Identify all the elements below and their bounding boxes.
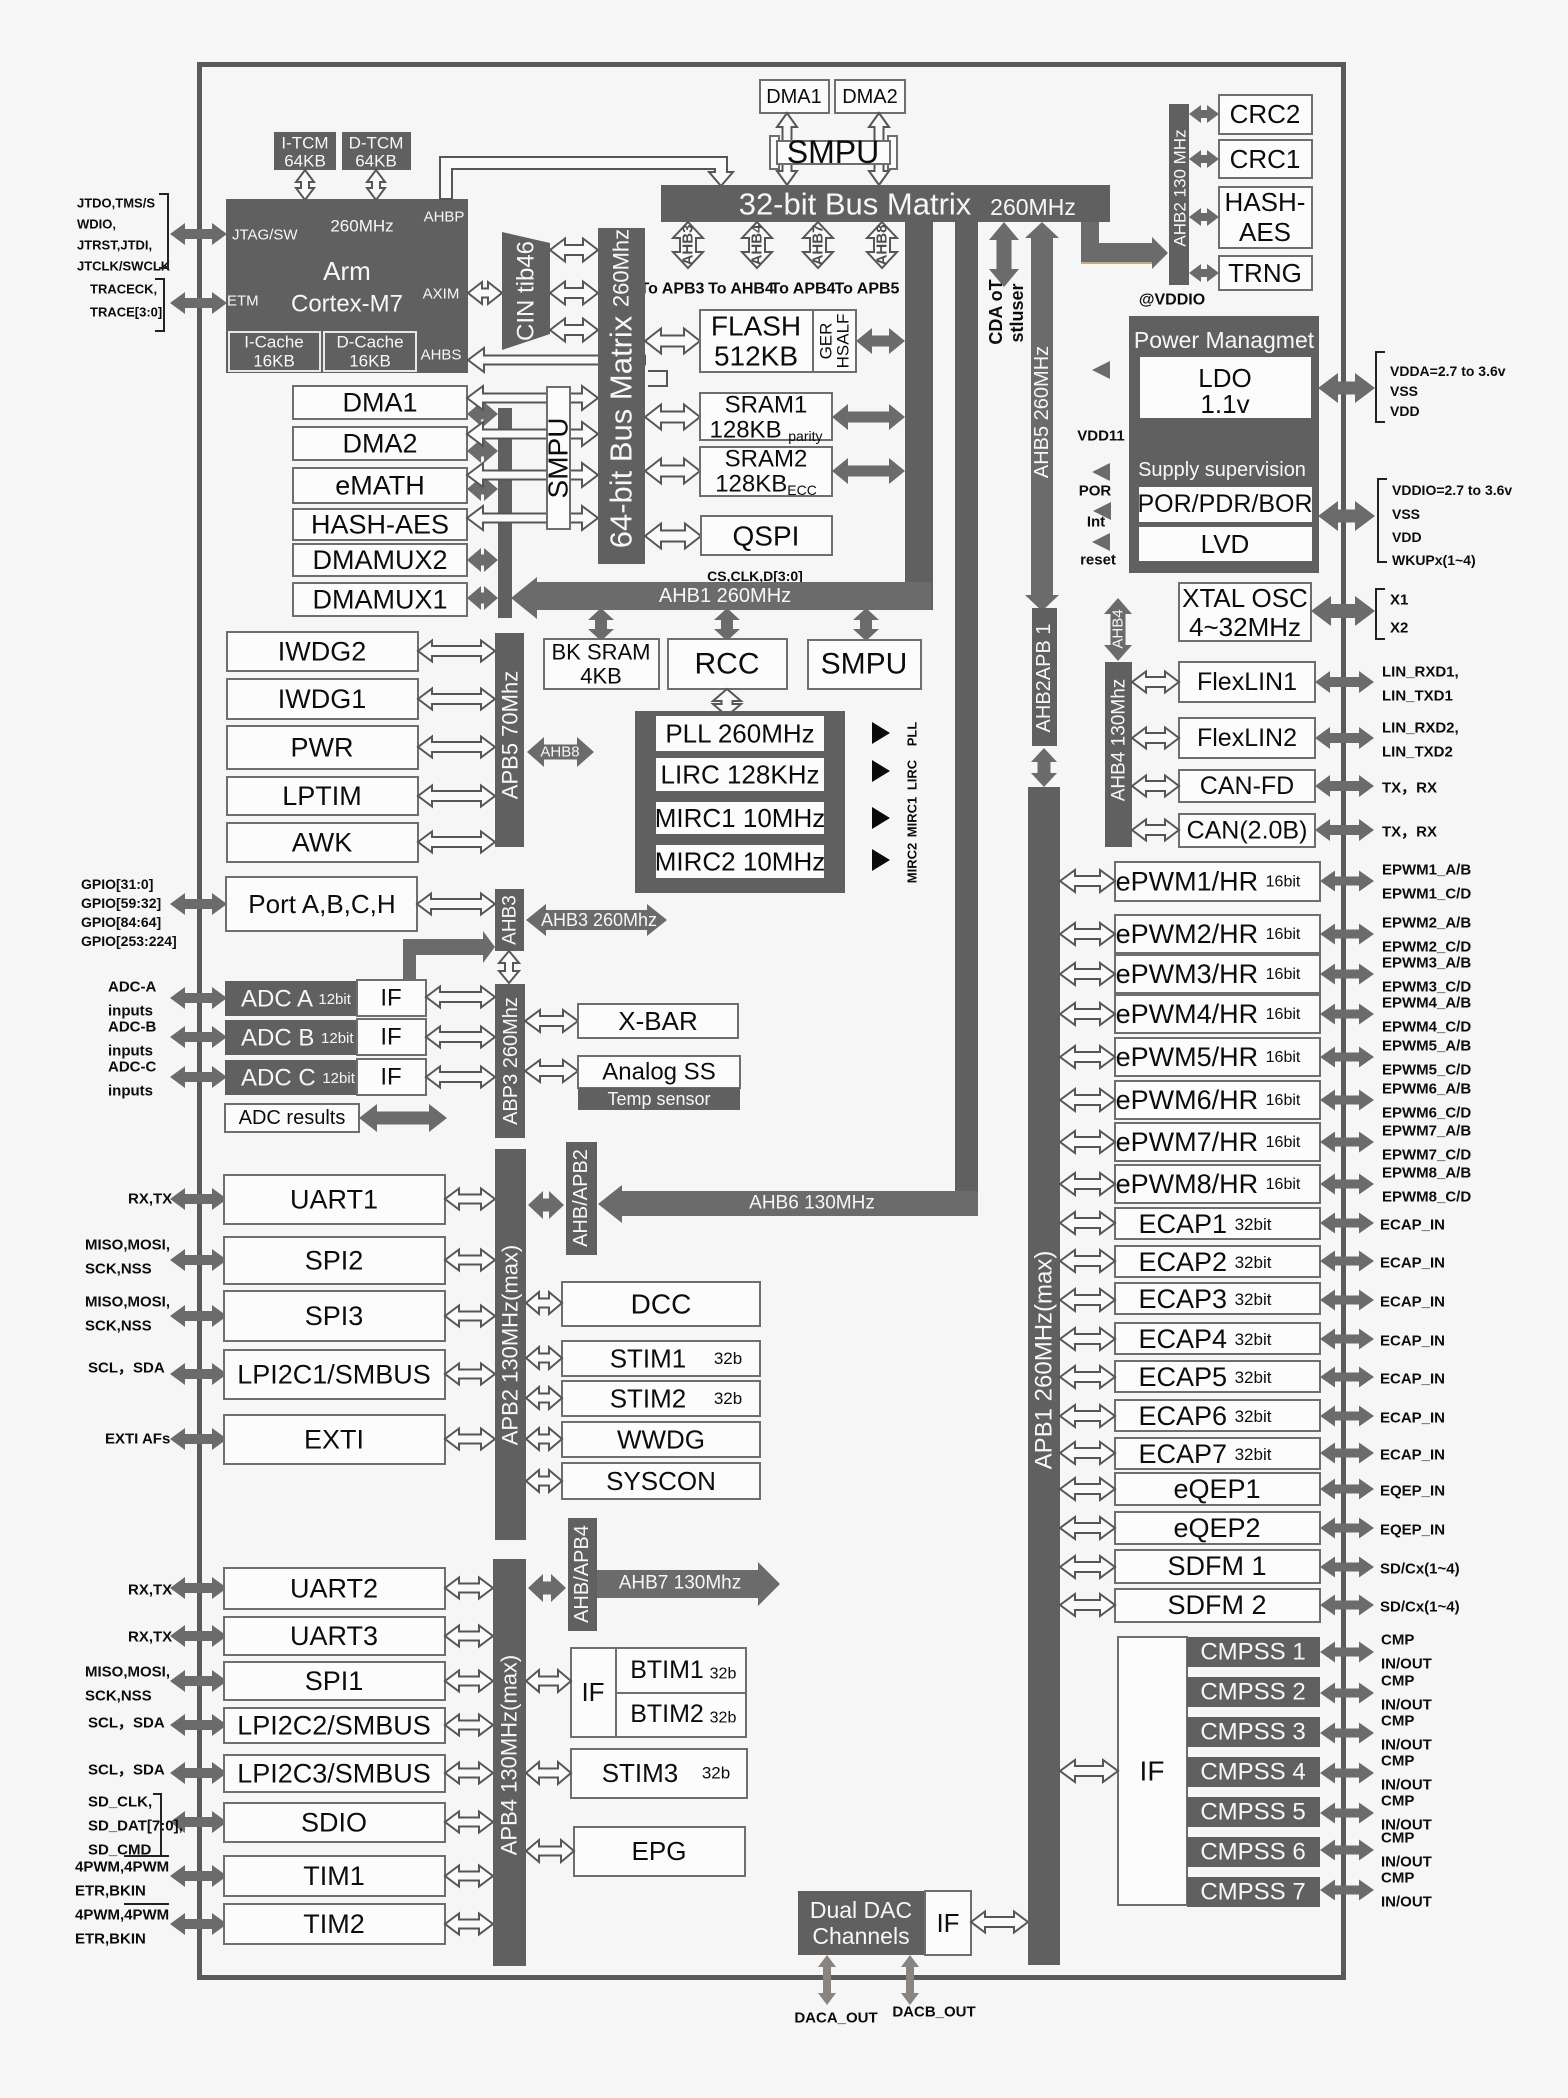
svg-text:TX，RX: TX，RX xyxy=(1382,780,1437,797)
svg-text:CRC1: CRC1 xyxy=(1230,144,1301,174)
svg-text:16KB: 16KB xyxy=(349,352,391,371)
svg-text:CIN tib46: CIN tib46 xyxy=(513,241,540,341)
svg-text:EPWM7_A/B: EPWM7_A/B xyxy=(1382,1123,1471,1140)
svg-text:CMPSS 5: CMPSS 5 xyxy=(1200,1799,1305,1826)
svg-text:LIRC: LIRC xyxy=(905,759,920,790)
svg-text:ECAP_IN: ECAP_IN xyxy=(1380,1447,1445,1464)
svg-text:RX,TX: RX,TX xyxy=(128,1629,172,1646)
svg-text:4~32MHz: 4~32MHz xyxy=(1189,612,1301,642)
svg-text:AHBS: AHBS xyxy=(421,347,462,364)
svg-text:IF: IF xyxy=(380,1024,401,1051)
svg-text:WWDG: WWDG xyxy=(617,1425,705,1455)
svg-text:AES: AES xyxy=(1239,217,1291,247)
svg-text:VDD: VDD xyxy=(1392,529,1422,545)
svg-text:SDFM 1: SDFM 1 xyxy=(1167,1551,1266,1581)
svg-text:BTIM2: BTIM2 xyxy=(630,1700,704,1728)
svg-text:LIRC 128KHz: LIRC 128KHz xyxy=(661,760,820,790)
svg-text:IF: IF xyxy=(380,985,401,1012)
svg-text:64KB: 64KB xyxy=(355,152,397,171)
svg-text:UART3: UART3 xyxy=(290,1621,378,1651)
svg-text:BTIM1: BTIM1 xyxy=(630,1656,704,1684)
svg-text:ECAP_IN: ECAP_IN xyxy=(1380,1333,1445,1350)
svg-text:AHB2 130 MHz: AHB2 130 MHz xyxy=(1171,129,1190,246)
svg-text:32b: 32b xyxy=(710,1666,737,1683)
svg-text:AWK: AWK xyxy=(292,828,353,858)
svg-text:HSALF: HSALF xyxy=(834,314,853,369)
svg-text:APB1 260MHz(max): APB1 260MHz(max) xyxy=(1031,1251,1058,1470)
svg-text:EPWM2_C/D: EPWM2_C/D xyxy=(1382,939,1471,956)
svg-text:GPIO[84:64]: GPIO[84:64] xyxy=(81,914,161,930)
svg-text:X-BAR: X-BAR xyxy=(618,1006,697,1036)
svg-text:LIN_RXD2,: LIN_RXD2, xyxy=(1382,720,1459,737)
svg-text:SCL，SDA: SCL，SDA xyxy=(88,1360,165,1377)
svg-text:MIRC1 10MHz: MIRC1 10MHz xyxy=(655,803,825,833)
svg-text:ECAP_IN: ECAP_IN xyxy=(1380,1294,1445,1311)
svg-text:I-Cache: I-Cache xyxy=(244,333,304,352)
svg-text:PWR: PWR xyxy=(291,733,354,763)
svg-text:260MHz: 260MHz xyxy=(330,217,393,236)
svg-text:4PWM,4PWM: 4PWM,4PWM xyxy=(75,1907,169,1924)
svg-text:MIRC2: MIRC2 xyxy=(905,843,920,883)
svg-text:EPWM3_C/D: EPWM3_C/D xyxy=(1382,979,1471,996)
svg-text:64KB: 64KB xyxy=(284,152,326,171)
svg-text:I-TCM: I-TCM xyxy=(281,134,328,153)
svg-text:SCK,NSS: SCK,NSS xyxy=(85,1318,152,1335)
svg-text:FlexLIN1: FlexLIN1 xyxy=(1197,668,1297,696)
svg-text:CMPSS 1: CMPSS 1 xyxy=(1200,1639,1305,1666)
svg-text:CMPSS 2: CMPSS 2 xyxy=(1200,1679,1305,1706)
svg-text:IN/OUT: IN/OUT xyxy=(1381,1777,1432,1794)
svg-text:SMPU: SMPU xyxy=(821,648,908,681)
svg-text:GPIO[253:224]: GPIO[253:224] xyxy=(81,933,177,949)
svg-text:LIN_TXD2: LIN_TXD2 xyxy=(1382,744,1453,761)
svg-text:32-bit Bus Matrix: 32-bit Bus Matrix xyxy=(739,187,972,222)
svg-text:EPWM4_C/D: EPWM4_C/D xyxy=(1382,1019,1471,1036)
svg-text:eMATH: eMATH xyxy=(335,471,425,501)
svg-text:AHB4: AHB4 xyxy=(1110,609,1127,648)
svg-text:eQEP1: eQEP1 xyxy=(1173,1474,1260,1504)
svg-text:RCC: RCC xyxy=(695,648,760,681)
svg-text:IF: IF xyxy=(380,1064,401,1091)
svg-text:Power Managmet: Power Managmet xyxy=(1134,327,1315,353)
svg-text:To AHB4: To AHB4 xyxy=(708,281,774,298)
svg-text:stluser: stluser xyxy=(1007,283,1027,342)
svg-text:RX,TX: RX,TX xyxy=(128,1582,172,1599)
svg-text:EPWM5_A/B: EPWM5_A/B xyxy=(1382,1038,1471,1055)
svg-text:IF: IF xyxy=(1140,1756,1165,1787)
svg-text:POR: POR xyxy=(1079,483,1112,500)
svg-text:inputs: inputs xyxy=(108,1003,153,1020)
svg-text:CMPSS 7: CMPSS 7 xyxy=(1200,1879,1305,1906)
svg-text:GER: GER xyxy=(817,323,836,360)
svg-text:Analog SS: Analog SS xyxy=(602,1059,715,1086)
svg-text:SD/Cx(1~4): SD/Cx(1~4) xyxy=(1380,1561,1460,1578)
svg-text:AHB1 260MHz: AHB1 260MHz xyxy=(659,585,791,607)
svg-text:AHB4: AHB4 xyxy=(749,224,766,265)
svg-text:ADC-C: ADC-C xyxy=(108,1059,156,1076)
svg-text:EPWM8_A/B: EPWM8_A/B xyxy=(1382,1165,1471,1182)
svg-text:XTAL OSC: XTAL OSC xyxy=(1182,583,1308,613)
svg-text:SRAM1: SRAM1 xyxy=(725,392,808,419)
svg-text:To APB4: To APB4 xyxy=(771,281,836,298)
svg-text:AHBP: AHBP xyxy=(424,209,465,226)
svg-text:DACB_OUT: DACB_OUT xyxy=(892,2004,975,2021)
svg-text:SDIO: SDIO xyxy=(301,1808,367,1838)
svg-text:TRACE[3:0]: TRACE[3:0] xyxy=(90,305,162,320)
svg-text:Dual DAC: Dual DAC xyxy=(810,1897,912,1923)
svg-text:CS,CLK,D[3:0]: CS,CLK,D[3:0] xyxy=(707,568,803,584)
svg-text:ECAP_IN: ECAP_IN xyxy=(1380,1255,1445,1272)
svg-text:Int: Int xyxy=(1087,514,1105,531)
svg-text:JTCLK/SWCLK: JTCLK/SWCLK xyxy=(77,259,171,274)
svg-text:ECAP_IN: ECAP_IN xyxy=(1380,1410,1445,1427)
svg-text:AHB2APB 1: AHB2APB 1 xyxy=(1033,624,1055,733)
svg-text:EPG: EPG xyxy=(632,1836,687,1866)
svg-text:CMP: CMP xyxy=(1381,1713,1414,1730)
svg-text:D-TCM: D-TCM xyxy=(349,134,404,153)
svg-text:IF: IF xyxy=(581,1677,604,1707)
svg-text:CAN(2.0B): CAN(2.0B) xyxy=(1187,817,1308,845)
svg-text:AHB7: AHB7 xyxy=(810,225,827,266)
svg-text:SMPU: SMPU xyxy=(543,418,574,499)
svg-text:D-Cache: D-Cache xyxy=(336,333,403,352)
svg-text:VSS: VSS xyxy=(1390,383,1418,399)
svg-text:Supply supervision: Supply supervision xyxy=(1138,459,1306,481)
svg-text:BK SRAM: BK SRAM xyxy=(551,640,650,665)
svg-text:EPWM1_A/B: EPWM1_A/B xyxy=(1382,862,1471,879)
svg-text:Cortex-M7: Cortex-M7 xyxy=(291,291,403,318)
svg-text:ECAP_IN: ECAP_IN xyxy=(1380,1217,1445,1234)
svg-text:EPWM5_C/D: EPWM5_C/D xyxy=(1382,1062,1471,1079)
svg-text:VDD11: VDD11 xyxy=(1077,428,1125,445)
svg-text:ADC-A: ADC-A xyxy=(108,979,156,996)
svg-text:AHB4 130Mhz: AHB4 130Mhz xyxy=(1109,679,1130,802)
svg-text:AHB3: AHB3 xyxy=(680,225,697,266)
svg-text:JTDO,TMS/S: JTDO,TMS/S xyxy=(77,196,155,211)
svg-text:SD_DAT[7:0],: SD_DAT[7:0], xyxy=(88,1818,183,1835)
svg-text:ETR,BKIN: ETR,BKIN xyxy=(75,1931,146,1948)
svg-text:GPIO[31:0]: GPIO[31:0] xyxy=(81,876,153,892)
svg-text:SPI1: SPI1 xyxy=(305,1666,364,1696)
svg-text:MIRC2 10MHz: MIRC2 10MHz xyxy=(655,847,825,877)
svg-text:IF: IF xyxy=(936,1908,959,1938)
svg-text:To APB5: To APB5 xyxy=(835,281,900,298)
svg-text:X1: X1 xyxy=(1390,592,1408,609)
svg-text:TIM1: TIM1 xyxy=(303,1861,365,1891)
svg-text:LPI2C1/SMBUS: LPI2C1/SMBUS xyxy=(237,1360,431,1390)
svg-text:EPWM2_A/B: EPWM2_A/B xyxy=(1382,915,1471,932)
svg-text:DCC: DCC xyxy=(631,1289,692,1320)
svg-text:ABP3 260Mhz: ABP3 260Mhz xyxy=(500,997,522,1125)
svg-text:SD/Cx(1~4): SD/Cx(1~4) xyxy=(1380,1599,1460,1616)
svg-text:DMA2: DMA2 xyxy=(342,429,417,459)
svg-text:LPTIM: LPTIM xyxy=(282,781,362,811)
svg-text:LVD: LVD xyxy=(1201,529,1250,559)
svg-text:ETR,BKIN: ETR,BKIN xyxy=(75,1883,146,1900)
svg-text:CRC2: CRC2 xyxy=(1230,99,1301,129)
svg-text:LPI2C2/SMBUS: LPI2C2/SMBUS xyxy=(237,1711,431,1741)
svg-text:APB2 130MHz(max): APB2 130MHz(max) xyxy=(498,1245,523,1446)
svg-text:EQEP_IN: EQEP_IN xyxy=(1380,1483,1445,1500)
svg-text:Port A,B,C,H: Port A,B,C,H xyxy=(248,889,395,919)
svg-text:IN/OUT: IN/OUT xyxy=(1381,1737,1432,1754)
svg-text:260Mhz: 260Mhz xyxy=(609,229,634,307)
svg-text:POR/PDR/BOR: POR/PDR/BOR xyxy=(1137,490,1312,518)
svg-text:ADC results: ADC results xyxy=(239,1107,346,1129)
svg-text:32b: 32b xyxy=(710,1710,737,1727)
svg-text:CMPSS 6: CMPSS 6 xyxy=(1200,1839,1305,1866)
svg-text:TRACECK,: TRACECK, xyxy=(90,282,157,297)
svg-text:64-bit Bus Matrix: 64-bit Bus Matrix xyxy=(604,315,639,548)
svg-text:SMPU: SMPU xyxy=(787,134,879,170)
svg-text:eQEP2: eQEP2 xyxy=(1173,1513,1260,1543)
svg-text:WKUPx(1~4): WKUPx(1~4) xyxy=(1392,552,1476,568)
svg-text:EPWM8_C/D: EPWM8_C/D xyxy=(1382,1189,1471,1206)
svg-text:AHB/APB2: AHB/APB2 xyxy=(570,1149,592,1247)
svg-text:CMP: CMP xyxy=(1381,1632,1414,1649)
svg-text:APB5 70Mhz: APB5 70Mhz xyxy=(498,671,523,799)
svg-text:LPI2C3/SMBUS: LPI2C3/SMBUS xyxy=(237,1759,431,1789)
svg-text:EPWM7_C/D: EPWM7_C/D xyxy=(1382,1147,1471,1164)
svg-text:SRAM2: SRAM2 xyxy=(725,446,808,473)
svg-text:CMPSS 4: CMPSS 4 xyxy=(1200,1759,1305,1786)
svg-text:IWDG1: IWDG1 xyxy=(278,684,367,714)
svg-text:STIM1: STIM1 xyxy=(610,1344,687,1374)
svg-text:reset: reset xyxy=(1080,552,1116,569)
svg-text:AHB/APB4: AHB/APB4 xyxy=(571,1525,593,1623)
svg-text:APB4 130MHz(max): APB4 130MHz(max) xyxy=(497,1655,522,1856)
svg-text:PLL: PLL xyxy=(905,722,920,747)
svg-text:SCK,NSS: SCK,NSS xyxy=(85,1688,152,1705)
svg-text:16KB: 16KB xyxy=(253,352,295,371)
svg-text:DMAMUX2: DMAMUX2 xyxy=(312,545,447,575)
svg-text:AHB7 130Mhz: AHB7 130Mhz xyxy=(619,1573,742,1594)
svg-text:SCL，SDA: SCL，SDA xyxy=(88,1762,165,1779)
svg-text:TIM2: TIM2 xyxy=(303,1909,365,1939)
svg-text:SD_CLK,: SD_CLK, xyxy=(88,1794,152,1811)
svg-text:PLL 260MHz: PLL 260MHz xyxy=(665,719,814,749)
svg-text:CMP: CMP xyxy=(1381,1673,1414,1690)
svg-text:EPWM6_A/B: EPWM6_A/B xyxy=(1382,1081,1471,1098)
svg-text:32b: 32b xyxy=(714,1389,742,1408)
svg-text:HASH-AES: HASH-AES xyxy=(311,510,449,540)
svg-text:JTAG/SW: JTAG/SW xyxy=(232,227,298,244)
svg-text:LIN_RXD1,: LIN_RXD1, xyxy=(1382,664,1459,681)
svg-text:SCK,NSS: SCK,NSS xyxy=(85,1261,152,1278)
svg-text:@VDDIO: @VDDIO xyxy=(1139,292,1205,309)
svg-text:MISO,MOSI,: MISO,MOSI, xyxy=(85,1237,170,1254)
svg-text:260MHz: 260MHz xyxy=(990,194,1076,220)
svg-text:LIN_TXD1: LIN_TXD1 xyxy=(1382,688,1453,705)
svg-text:DMA1: DMA1 xyxy=(766,86,822,108)
svg-text:AHB8: AHB8 xyxy=(540,744,579,761)
svg-text:CMP: CMP xyxy=(1381,1830,1414,1847)
svg-text:MIRC1: MIRC1 xyxy=(905,797,920,837)
svg-text:SYSCON: SYSCON xyxy=(606,1466,716,1496)
svg-text:32b: 32b xyxy=(702,1764,730,1783)
svg-text:CAN-FD: CAN-FD xyxy=(1200,772,1294,800)
svg-text:IN/OUT: IN/OUT xyxy=(1381,1854,1432,1871)
svg-text:DMA2: DMA2 xyxy=(842,86,898,108)
svg-text:IN/OUT: IN/OUT xyxy=(1381,1894,1432,1911)
svg-text:Temp sensor: Temp sensor xyxy=(607,1089,710,1109)
svg-text:SPI3: SPI3 xyxy=(305,1301,364,1331)
svg-text:ADC-B: ADC-B xyxy=(108,1019,156,1036)
svg-text:AHB5 260MHz: AHB5 260MHz xyxy=(1031,346,1053,478)
svg-text:IN/OUT: IN/OUT xyxy=(1381,1697,1432,1714)
svg-text:STIM2: STIM2 xyxy=(610,1384,687,1414)
svg-text:DACA_OUT: DACA_OUT xyxy=(794,2010,877,2027)
svg-text:SDFM 2: SDFM 2 xyxy=(1167,1590,1266,1620)
svg-text:SPI2: SPI2 xyxy=(305,1246,364,1276)
svg-text:CMP: CMP xyxy=(1381,1870,1414,1887)
svg-text:1.1v: 1.1v xyxy=(1200,389,1249,419)
svg-text:AXIM: AXIM xyxy=(423,286,460,303)
svg-text:ECAP_IN: ECAP_IN xyxy=(1380,1371,1445,1388)
svg-text:EPWM4_A/B: EPWM4_A/B xyxy=(1382,995,1471,1012)
svg-text:32b: 32b xyxy=(714,1349,742,1368)
svg-text:inputs: inputs xyxy=(108,1083,153,1100)
svg-text:FLASH: FLASH xyxy=(711,311,801,342)
svg-text:4PWM,4PWM: 4PWM,4PWM xyxy=(75,1859,169,1876)
svg-text:DMAMUX1: DMAMUX1 xyxy=(312,585,447,615)
svg-text:CMP: CMP xyxy=(1381,1753,1414,1770)
svg-text:EXTI AFs: EXTI AFs xyxy=(105,1431,170,1448)
svg-text:X2: X2 xyxy=(1390,620,1408,637)
svg-text:AHB3 260Mhz: AHB3 260Mhz xyxy=(541,910,657,930)
svg-text:EXTI: EXTI xyxy=(304,1425,364,1455)
svg-text:MISO,MOSI,: MISO,MOSI, xyxy=(85,1294,170,1311)
svg-text:TX，RX: TX，RX xyxy=(1382,824,1437,841)
svg-text:VDD: VDD xyxy=(1390,403,1420,419)
svg-text:VDDIO=2.7 to 3.6v: VDDIO=2.7 to 3.6v xyxy=(1392,482,1512,498)
svg-text:To APB3: To APB3 xyxy=(640,281,705,298)
svg-text:EPWM6_C/D: EPWM6_C/D xyxy=(1382,1105,1471,1122)
svg-text:IN/OUT: IN/OUT xyxy=(1381,1656,1432,1673)
svg-text:VSS: VSS xyxy=(1392,506,1420,522)
svg-text:IWDG2: IWDG2 xyxy=(278,637,367,667)
svg-text:EPWM1_C/D: EPWM1_C/D xyxy=(1382,886,1471,903)
svg-text:MISO,MOSI,: MISO,MOSI, xyxy=(85,1664,170,1681)
svg-text:UART1: UART1 xyxy=(290,1185,378,1215)
svg-text:HASH-: HASH- xyxy=(1225,187,1306,217)
svg-text:AHB6 130MHz: AHB6 130MHz xyxy=(749,1193,875,1214)
svg-text:JTRST,JTDI,: JTRST,JTDI, xyxy=(77,238,152,253)
svg-text:QSPI: QSPI xyxy=(733,521,800,552)
svg-text:AHB3: AHB3 xyxy=(500,895,521,945)
svg-text:4KB: 4KB xyxy=(580,664,622,689)
svg-text:WDIO,: WDIO, xyxy=(77,217,116,232)
svg-text:AHB8: AHB8 xyxy=(874,225,891,266)
svg-text:STIM3: STIM3 xyxy=(602,1758,679,1788)
svg-text:GPIO[59:32]: GPIO[59:32] xyxy=(81,895,161,911)
svg-text:FlexLIN2: FlexLIN2 xyxy=(1197,724,1297,752)
svg-text:TRNG: TRNG xyxy=(1228,258,1302,288)
svg-text:SCL，SDA: SCL，SDA xyxy=(88,1715,165,1732)
svg-text:EQEP_IN: EQEP_IN xyxy=(1380,1522,1445,1539)
svg-text:RX,TX: RX,TX xyxy=(128,1191,172,1208)
svg-text:UART2: UART2 xyxy=(290,1574,378,1604)
svg-text:EPWM3_A/B: EPWM3_A/B xyxy=(1382,955,1471,972)
svg-text:Arm: Arm xyxy=(323,256,371,286)
svg-text:Channels: Channels xyxy=(812,1923,909,1949)
svg-text:inputs: inputs xyxy=(108,1043,153,1060)
svg-text:VDDA=2.7 to 3.6v: VDDA=2.7 to 3.6v xyxy=(1390,363,1506,379)
svg-text:CDA oT: CDA oT xyxy=(986,279,1006,344)
svg-text:512KB: 512KB xyxy=(714,341,798,372)
svg-text:DMA1: DMA1 xyxy=(342,388,417,418)
svg-text:CMP: CMP xyxy=(1381,1793,1414,1810)
svg-text:CMPSS 3: CMPSS 3 xyxy=(1200,1719,1305,1746)
svg-text:ETM: ETM xyxy=(227,293,259,310)
